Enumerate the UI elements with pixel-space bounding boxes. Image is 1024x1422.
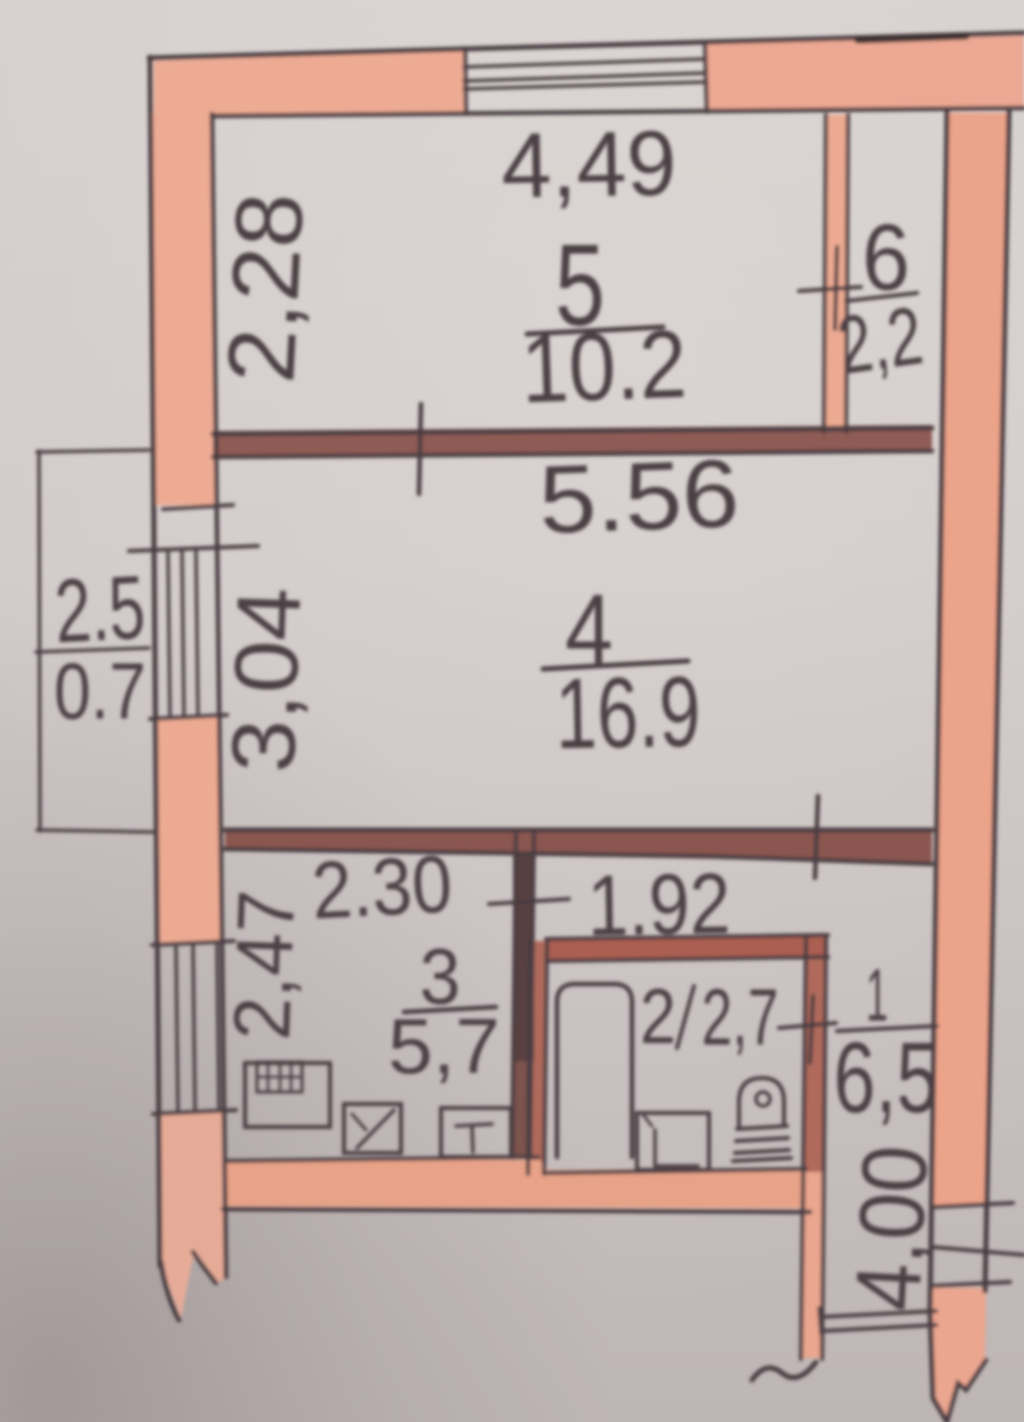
svg-text:16.9: 16.9 — [555, 656, 702, 771]
svg-text:10.2: 10.2 — [520, 311, 689, 424]
svg-text:2,28: 2,28 — [208, 190, 324, 385]
svg-text:2,7: 2,7 — [702, 973, 779, 1062]
svg-text:2.30: 2.30 — [310, 839, 455, 936]
svg-text:4,00: 4,00 — [837, 1143, 947, 1313]
svg-text:5,7: 5,7 — [388, 1002, 500, 1090]
svg-text:6,5: 6,5 — [834, 1022, 939, 1134]
svg-text:1.92: 1.92 — [587, 856, 732, 954]
svg-text:4,49: 4,49 — [501, 112, 678, 217]
svg-text:2: 2 — [640, 972, 676, 1060]
svg-text:5.56: 5.56 — [537, 440, 741, 554]
svg-text:0.7: 0.7 — [54, 647, 146, 736]
svg-text:2,47: 2,47 — [217, 888, 311, 1041]
svg-text:3,04: 3,04 — [214, 586, 320, 774]
svg-text:2,2: 2,2 — [832, 290, 928, 392]
